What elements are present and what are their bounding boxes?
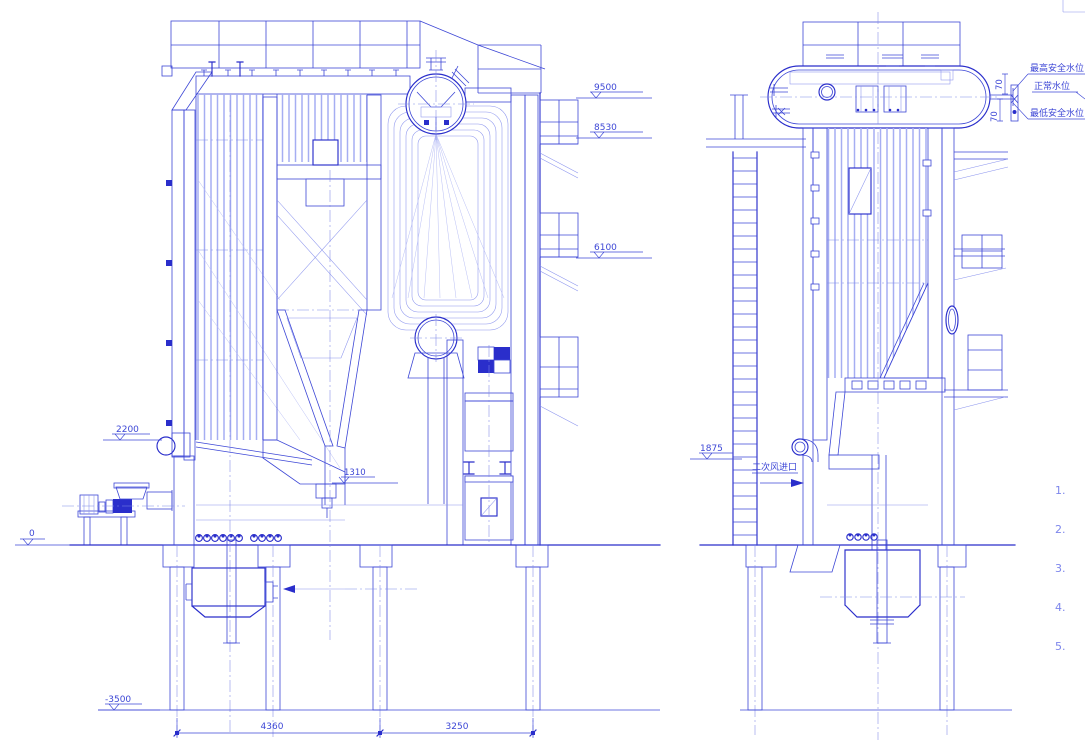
- elevation-minus-3500: -3500: [98, 695, 160, 710]
- gauge-dimensions: 70 70: [990, 74, 1008, 122]
- elevation-label: 0: [29, 529, 35, 539]
- steam-drum-section: [398, 50, 474, 140]
- note-5: 5.: [1055, 640, 1066, 653]
- rear-division-wall: [447, 340, 463, 545]
- elevation-9500: 9500: [576, 83, 652, 98]
- elevation-label: 2200: [116, 425, 139, 435]
- steam-drum-longitudinal: [760, 55, 1000, 128]
- water-level-labels: 最高安全水位 正常水位 最低安全水位: [1013, 62, 1085, 119]
- water-level-normal: 正常水位: [1034, 80, 1070, 92]
- elevation-label: 1310: [344, 468, 366, 478]
- lower-drum: [408, 314, 464, 504]
- water-level-high: 最高安全水位: [1030, 62, 1084, 74]
- roof-insulation: [196, 62, 410, 94]
- gauge-dim-lower: 70: [990, 111, 1000, 122]
- dimension-3250: 3250: [446, 722, 469, 732]
- notes-list: 1. 2. 3. 4. 5.: [1055, 484, 1066, 653]
- feeder-motor-assembly: [62, 483, 185, 545]
- access-ladder: [706, 95, 806, 545]
- secondary-air-text: 二次风进口: [752, 461, 797, 473]
- gauge-dim-upper: 70: [995, 79, 1005, 90]
- platform-brackets-left-view: [540, 100, 578, 426]
- elevation-8530: 8530: [576, 123, 652, 138]
- elevation-label: 8530: [594, 123, 617, 133]
- note-4: 4.: [1055, 601, 1066, 614]
- elevation-label: -3500: [105, 695, 131, 705]
- elevation-0: 0: [15, 529, 70, 545]
- bottom-dimension-line: 4360 3250: [174, 718, 536, 738]
- elevation-6100: 6100: [576, 243, 652, 258]
- note-2: 2.: [1055, 523, 1066, 536]
- elevation-label: 9500: [594, 83, 617, 93]
- boiler-drawing: 9500 8530 6100 2200 0 -3500 1310 4360 32…: [0, 0, 1085, 742]
- foundation-left-view: [70, 100, 660, 738]
- secondary-air-inlet-label: 二次风进口: [752, 461, 804, 487]
- penthouse: [803, 22, 960, 68]
- ash-hopper-left-view: [186, 540, 420, 643]
- elevation-label: 1875: [700, 444, 723, 454]
- chain-grate: [157, 433, 463, 541]
- left-view: [62, 21, 660, 738]
- ash-hopper-right-view: [820, 540, 965, 643]
- fourth-pass: [464, 345, 513, 545]
- top-platform-structure: [162, 21, 545, 93]
- elevation-2200: 2200: [103, 425, 162, 440]
- drawing-sheet: 9500 8530 6100 2200 0 -3500 1310 4360 32…: [0, 0, 1085, 742]
- platform-brackets-right-view: [944, 152, 1008, 410]
- water-level-low: 最低安全水位: [1030, 107, 1084, 119]
- air-flow-arrow: [791, 479, 804, 487]
- note-3: 3.: [1055, 562, 1066, 575]
- second-pass-chamber: [277, 94, 381, 505]
- foundation-right-view: [700, 545, 1015, 735]
- sheet-border-mark: [1063, 0, 1085, 12]
- dimension-4360: 4360: [261, 722, 284, 732]
- elevation-label: 6100: [594, 243, 617, 253]
- rear-wall: [511, 93, 540, 545]
- right-view: [700, 12, 1018, 740]
- note-1: 1.: [1055, 484, 1066, 497]
